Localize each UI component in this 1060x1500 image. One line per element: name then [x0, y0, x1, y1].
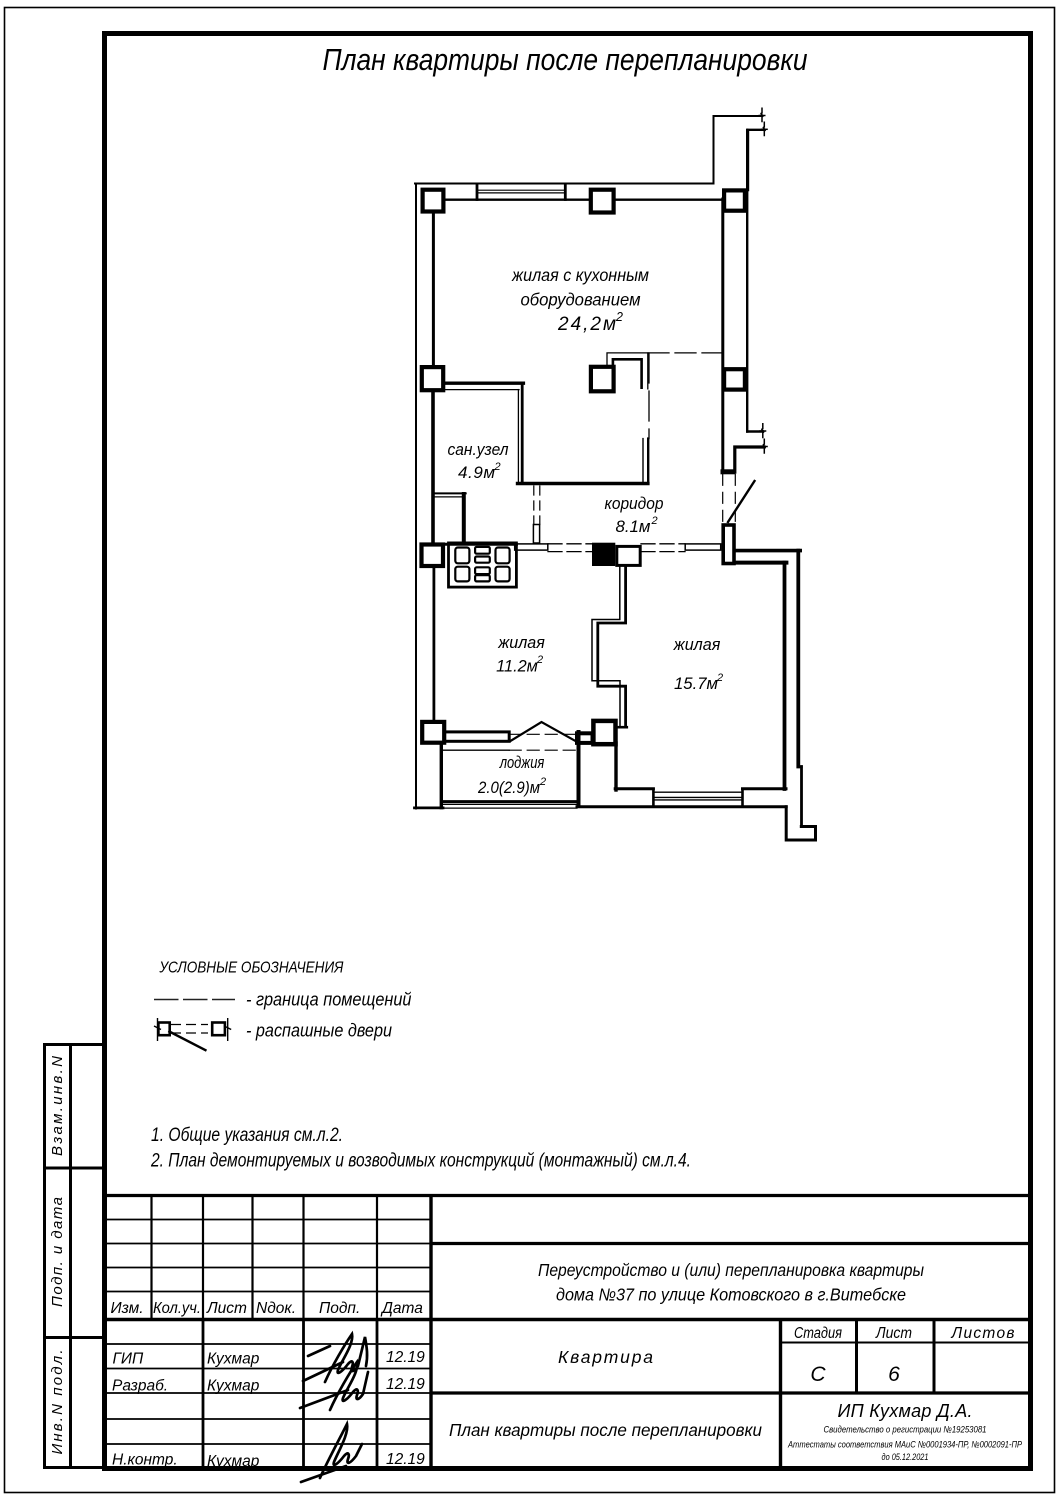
- svg-text:12.19: 12.19: [386, 1349, 425, 1366]
- svg-text:жилая: жилая: [673, 635, 721, 654]
- svg-text:коридор: коридор: [605, 494, 664, 513]
- svg-text:Подп. и дата: Подп. и дата: [49, 1197, 66, 1307]
- svg-text:С: С: [810, 1363, 826, 1386]
- svg-text:Стадия: Стадия: [794, 1325, 842, 1342]
- svg-text:Кухмар: Кухмар: [207, 1453, 260, 1470]
- svg-text:План квартиры после перепланир: План квартиры после перепланировки: [449, 1420, 762, 1440]
- svg-text:2: 2: [650, 515, 657, 527]
- svg-text:11.2м: 11.2м: [496, 657, 538, 676]
- svg-text:Переустройство и (или) перепла: Переустройство и (или) перепланировка кв…: [538, 1260, 924, 1280]
- svg-text:Кухмар: Кухмар: [207, 1351, 260, 1368]
- svg-text:дома №37 по улице Котовского в: дома №37 по улице Котовского в г.Витебск…: [556, 1285, 906, 1305]
- svg-text:Инв.N подл.: Инв.N подл.: [49, 1350, 66, 1455]
- svg-text:8.1м: 8.1м: [616, 517, 651, 536]
- svg-text:4.9м: 4.9м: [458, 463, 495, 482]
- svg-text:ИП Кухмар Д.А.: ИП Кухмар Д.А.: [838, 1401, 973, 1421]
- svg-text:Кухмар: Кухмар: [207, 1378, 260, 1395]
- svg-text:2.0(2.9)м: 2.0(2.9)м: [477, 778, 540, 797]
- svg-text:- граница помещений: - граница помещений: [246, 989, 412, 1010]
- svg-text:до 05.12.2021: до 05.12.2021: [882, 1452, 929, 1463]
- svg-text:Nдок.: Nдок.: [256, 1300, 296, 1317]
- svg-text:ГИП: ГИП: [113, 1351, 145, 1368]
- svg-text:Лист: Лист: [875, 1325, 912, 1342]
- svg-text:Дата: Дата: [380, 1300, 423, 1317]
- svg-text:24,2м: 24,2м: [557, 314, 616, 335]
- svg-text:Лист: Лист: [206, 1300, 247, 1317]
- svg-text:- распашные двери: - распашные двери: [246, 1020, 392, 1041]
- svg-text:План квартиры после перепланир: План квартиры после перепланировки: [323, 42, 808, 77]
- svg-text:12.19: 12.19: [386, 1451, 425, 1468]
- svg-text:15.7м: 15.7м: [674, 674, 718, 693]
- svg-text:УСЛОВНЫЕ ОБОЗНАЧЕНИЯ: УСЛОВНЫЕ ОБОЗНАЧЕНИЯ: [159, 960, 344, 977]
- svg-text:жилая с кухонным: жилая с кухонным: [511, 265, 649, 285]
- svg-text:2: 2: [536, 654, 543, 666]
- svg-text:2: 2: [493, 461, 500, 473]
- svg-text:Изм.: Изм.: [111, 1300, 144, 1317]
- svg-text:оборудованием: оборудованием: [521, 290, 641, 310]
- svg-text:Разраб.: Разраб.: [112, 1378, 168, 1395]
- svg-text:жилая: жилая: [497, 633, 545, 652]
- svg-text:12.19: 12.19: [386, 1376, 425, 1393]
- svg-text:2: 2: [716, 672, 723, 684]
- svg-text:Аттестаты соответствия МАиС №0: Аттестаты соответствия МАиС №0001934-ПР,…: [787, 1440, 1022, 1451]
- svg-text:Подп.: Подп.: [319, 1300, 360, 1317]
- svg-text:2: 2: [539, 776, 546, 788]
- svg-text:Свидетельство о регистрации №1: Свидетельство о регистрации №19253081: [824, 1425, 987, 1436]
- svg-text:Листов: Листов: [951, 1325, 1015, 1342]
- svg-text:1. Общие указания см.л.2.: 1. Общие указания см.л.2.: [151, 1125, 343, 1146]
- svg-text:лоджия: лоджия: [499, 753, 544, 772]
- svg-text:Квартира: Квартира: [558, 1347, 653, 1367]
- svg-text:Кол.уч.: Кол.уч.: [153, 1300, 201, 1317]
- svg-text:Н.контр.: Н.контр.: [112, 1452, 178, 1469]
- svg-text:2. План демонтируемых и возвод: 2. План демонтируемых и возводимых конст…: [150, 1151, 691, 1172]
- svg-text:6: 6: [888, 1363, 900, 1386]
- svg-text:2: 2: [615, 310, 623, 324]
- svg-text:сан.узел: сан.узел: [448, 440, 509, 459]
